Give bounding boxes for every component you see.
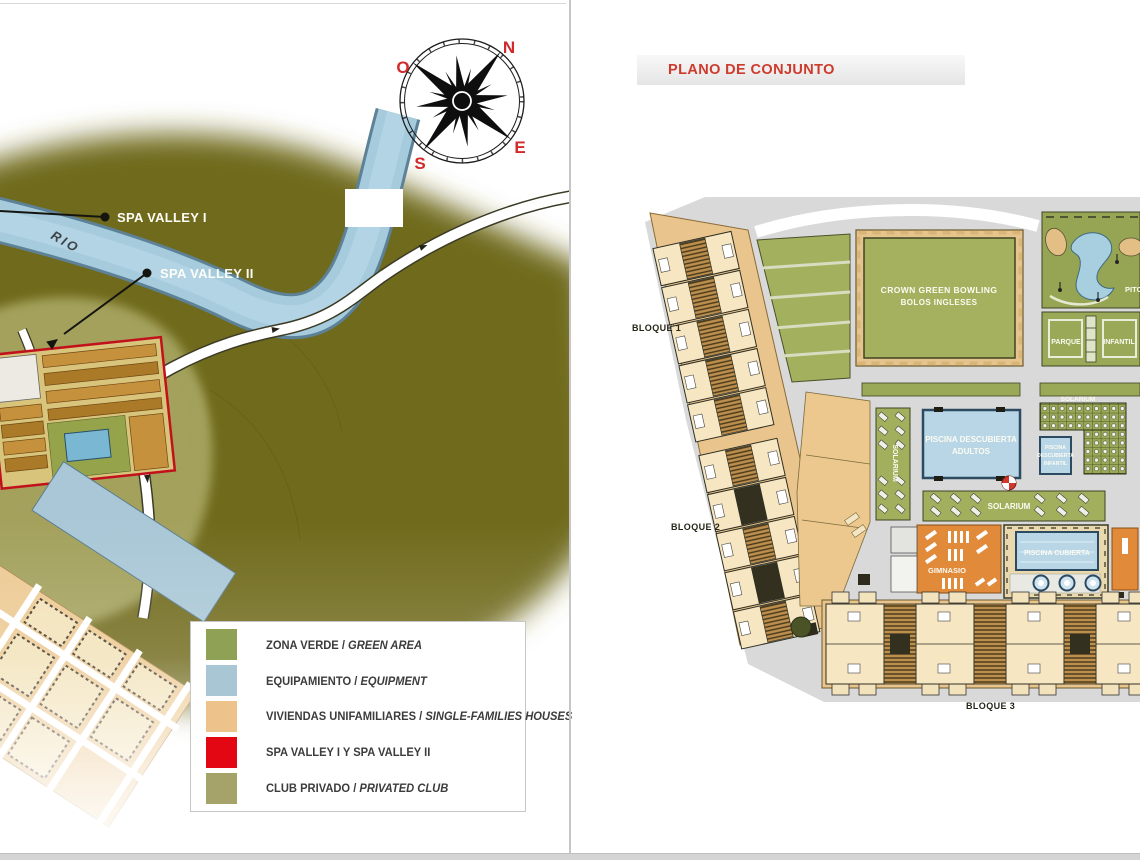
brochure-spread: RIO [0, 0, 1140, 860]
gym: GIMNASIO [891, 525, 1001, 593]
indoor-pool: PISCINA CUBIERTA [1004, 525, 1108, 598]
marker-spa-valley-2-label: SPA VALLEY II [160, 266, 254, 281]
legend-swatch-equipment [206, 665, 237, 696]
legend-swatch-green-area [206, 629, 237, 660]
legend-label-italic: PRIVATED CLUB [359, 781, 448, 795]
compass-n: N [503, 38, 515, 57]
kids-pool: PISCINA DESCUBIERTA INFANTIL [1037, 437, 1074, 474]
legend-item-spa-valley: SPA VALLEY I Y SPA VALLEY II [191, 735, 525, 769]
bloque-3-label: BLOQUE 3 [966, 701, 1015, 711]
indoor-pool-label: PISCINA CUBIERTA [1024, 550, 1090, 557]
legend-swatch-spa-valley [206, 737, 237, 768]
adult-pool-label-1: PISCINA DESCUBIERTA [925, 435, 1017, 444]
kids-pool-label-2: DESCUBIERTA [1037, 453, 1074, 459]
legend-item-houses: VIVIENDAS UNIFAMILIARES / SINGLE-FAMILIE… [191, 699, 525, 733]
spa-tubs [1034, 576, 1101, 591]
bloque-2-label: BLOQUE 2 [671, 522, 720, 532]
main-solarium: SOLARIUM [923, 491, 1105, 521]
compass-s: S [414, 154, 425, 173]
bloque-1-label: BLOQUE 1 [632, 323, 681, 333]
blank-label-box [345, 189, 403, 227]
spa-valley-complex [0, 337, 175, 488]
kids-pool-label-3: INFANTIL [1044, 461, 1068, 467]
marker-spa-valley-1-label: SPA VALLEY I [117, 210, 207, 225]
page-bottom-edge [0, 853, 1140, 860]
legend-label: SPA VALLEY I Y SPA VALLEY II [266, 745, 430, 759]
main-solarium-label: SOLARIUM [988, 502, 1031, 511]
compass-e: E [514, 138, 525, 157]
compass-o: O [396, 58, 409, 77]
bowling-label-2: BOLOS INGLESES [901, 298, 978, 307]
green-strip-left [862, 383, 1020, 396]
legend-label: VIVIENDAS UNIFAMILIARES / [266, 709, 425, 723]
legend-label: EQUIPAMIENTO / [266, 674, 360, 688]
legend-item-equipment: EQUIPAMIENTO / EQUIPMENT [191, 664, 525, 698]
playground: PARQUE INFANTIL [1042, 312, 1140, 366]
page-divider [569, 0, 571, 854]
bowling-green: CROWN GREEN BOWLING BOLOS INGLESES [856, 230, 1023, 366]
spa-wing [1112, 528, 1138, 598]
kids-pool-label-1: PISCINA [1045, 445, 1066, 451]
adult-pool-label-2: ADULTOS [952, 447, 991, 456]
legend-label: ZONA VERDE / [266, 638, 348, 652]
side-solarium-label: SOLARIUM [891, 444, 898, 482]
legend-swatch-private-club [206, 773, 237, 804]
parasol-icon [1002, 476, 1016, 490]
adult-pool: PISCINA DESCUBIERTA ADULTOS [923, 407, 1020, 481]
pitch-and-putt: PITCH [1042, 212, 1140, 308]
legend-label-italic: GREEN AREA [348, 638, 422, 652]
legend-label: CLUB PRIVADO / [266, 781, 359, 795]
side-solarium: SOLARIUM [876, 408, 910, 520]
gym-label: GIMNASIO [928, 566, 966, 575]
bloque-3-houses [822, 592, 1140, 695]
playground-label-right: INFANTIL [1103, 339, 1135, 346]
legend-item-green-area: ZONA VERDE / GREEN AREA [191, 628, 525, 662]
legend-label-italic: SINGLE-FAMILIES HOUSES [425, 709, 572, 723]
legend-item-private-club: CLUB PRIVADO / PRIVATED CLUB [191, 771, 525, 805]
bowling-label-1: CROWN GREEN BOWLING [881, 285, 998, 295]
map-legend: ZONA VERDE / GREEN AREA EQUIPAMIENTO / E… [190, 621, 526, 812]
green-strip-right [1040, 383, 1140, 396]
site-plan: CROWN GREEN BOWLING BOLOS INGLESES PITCH [570, 0, 1140, 860]
pergola-solarium-label: SOLARIUM [1061, 396, 1096, 403]
legend-label-italic: EQUIPMENT [360, 674, 426, 688]
playground-label-left: PARQUE [1051, 339, 1081, 346]
legend-swatch-houses [206, 701, 237, 732]
pitch-putt-label: PITCH [1125, 285, 1140, 294]
